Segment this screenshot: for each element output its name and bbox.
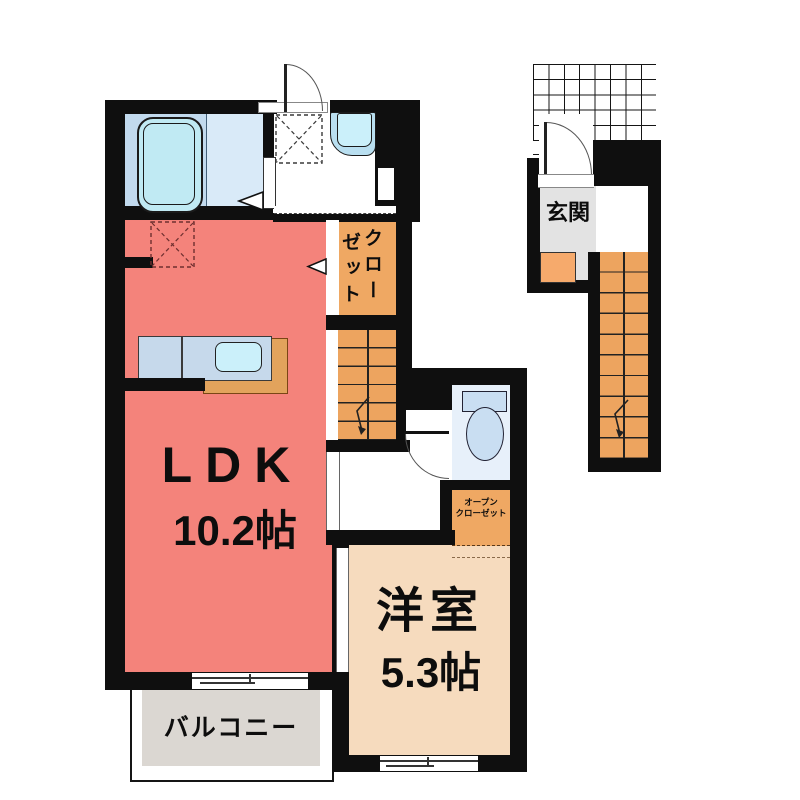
wall bbox=[326, 440, 410, 452]
open-closet-label-line1: オープン bbox=[452, 498, 510, 507]
kitchen-sink bbox=[215, 342, 262, 372]
ldk-size-label: 10.2帖 bbox=[135, 510, 335, 552]
window-line bbox=[200, 682, 255, 684]
entrance-step bbox=[540, 252, 576, 283]
threshold-dashed bbox=[274, 206, 396, 214]
door-swing-arc bbox=[286, 64, 323, 111]
entrance-threshold bbox=[538, 174, 594, 188]
toilet-door-swing-arc bbox=[405, 434, 449, 479]
wall bbox=[588, 458, 661, 472]
open-closet-label-line2: クローゼット bbox=[452, 509, 510, 518]
refrigerator-space-icon bbox=[150, 221, 195, 268]
wall bbox=[406, 385, 452, 410]
ldk-label: LDK bbox=[135, 440, 330, 490]
window-tick bbox=[427, 757, 429, 766]
western-room-size-label: 5.3帖 bbox=[348, 652, 514, 694]
wall bbox=[105, 100, 125, 690]
kitchen-partition-wall bbox=[125, 378, 205, 391]
wall-niche bbox=[378, 168, 394, 200]
window-line bbox=[380, 760, 478, 762]
door-leaf bbox=[284, 64, 287, 112]
western-room-window bbox=[380, 756, 478, 771]
balcony-window bbox=[192, 673, 308, 689]
stairs-down-arrow-icon bbox=[350, 394, 374, 436]
balcony-label: バルコニー bbox=[140, 716, 322, 741]
floor-plan: LDK 10.2帖 洋室 5.3帖 バルコニー 玄関 クロー ゼット オープン … bbox=[0, 0, 800, 800]
entrance-label: 玄関 bbox=[540, 202, 596, 224]
bathtub-inner-line bbox=[143, 123, 195, 205]
closet-label-col-left: ゼット bbox=[336, 232, 363, 322]
wall bbox=[396, 206, 412, 368]
wall bbox=[510, 368, 527, 772]
wall bbox=[263, 113, 274, 157]
bathroom-sink-basin bbox=[337, 113, 372, 147]
stairs-down-arrow-icon bbox=[607, 396, 633, 440]
wall bbox=[396, 368, 527, 385]
open-closet-dashed-line bbox=[452, 557, 510, 558]
window-tick bbox=[249, 674, 251, 683]
wall bbox=[648, 140, 661, 472]
western-room-label: 洋室 bbox=[350, 588, 510, 636]
entrance-door-leaf bbox=[544, 122, 547, 174]
bath-door-direction-icon bbox=[237, 190, 265, 212]
toilet-door-leaf bbox=[404, 431, 449, 434]
wall bbox=[125, 257, 153, 268]
kitchen-counter-divider bbox=[181, 336, 183, 379]
closet-door-direction-icon bbox=[306, 257, 328, 276]
washing-machine-space-icon bbox=[275, 114, 323, 164]
toilet-bowl bbox=[466, 407, 504, 461]
